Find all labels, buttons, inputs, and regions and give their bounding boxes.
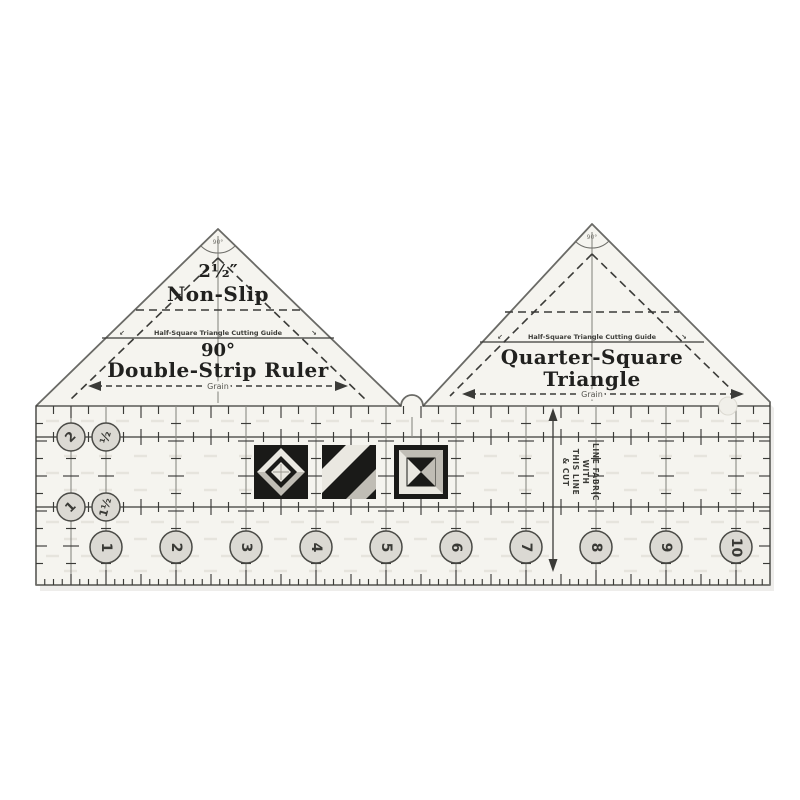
left-nonslip-label: Non-Slip [167, 282, 269, 306]
note-line-3: THIS LINE [571, 449, 580, 496]
svg-text:1: 1 [98, 543, 114, 553]
right-guide-arrow-left-icon: ↙ [497, 333, 502, 341]
strip-label: ½ [92, 423, 120, 451]
strip-label: 2 [57, 423, 85, 451]
note-line-4: & CUT [561, 458, 570, 487]
inch-label: 10 [720, 531, 752, 563]
inch-label: 1 [90, 531, 122, 563]
left-apex-angle-label: 90° [213, 239, 224, 246]
right-guide-arrow-right-icon: ↘ [681, 333, 686, 341]
left-guide-arrow-left-icon: ↙ [119, 329, 124, 337]
svg-text:7: 7 [518, 543, 534, 553]
inch-label: 7 [510, 531, 542, 563]
right-guide-label: Half-Square Triangle Cutting Guide [528, 333, 657, 341]
svg-text:3: 3 [238, 543, 254, 553]
right-title-line1: Quarter-Square [501, 345, 683, 369]
svg-text:8: 8 [588, 543, 604, 553]
right-title-line2: Triangle [543, 367, 640, 391]
left-guide-arrow-right-icon: ↘ [311, 329, 316, 337]
inch-label: 6 [440, 531, 472, 563]
note-line-2: WITH [581, 460, 590, 485]
product-photo-quilting-ruler: 90° 2½″ Non-Slip ↙ Half-Square Triangle … [0, 0, 800, 800]
svg-text:5: 5 [378, 543, 394, 553]
quilt-block-icons [254, 445, 448, 499]
right-apex-angle-label: 90° [587, 234, 598, 241]
svg-text:6: 6 [448, 543, 464, 553]
inch-label: 3 [230, 531, 262, 563]
left-guide-label: Half-Square Triangle Cutting Guide [154, 329, 283, 337]
left-grain-label: Grain [207, 382, 229, 391]
left-size-label: 2½″ [198, 261, 237, 282]
inch-label: 2 [160, 531, 192, 563]
quilt-block-hourglass-icon [394, 445, 448, 499]
strip-label: 1½ [92, 493, 120, 521]
molded-dot [719, 397, 737, 415]
right-grain-label: Grain [581, 390, 603, 399]
svg-text:10: 10 [728, 538, 744, 558]
quilt-block-diagonal-stripes-icon [322, 445, 376, 499]
strip-label: 1 [57, 493, 85, 521]
svg-text:2: 2 [168, 543, 184, 553]
inch-label: 8 [580, 531, 612, 563]
quilt-block-square-in-square-icon [254, 445, 308, 499]
left-title-label: Double-Strip Ruler [107, 358, 329, 382]
ruler-body [36, 224, 770, 585]
ruler-image: 90° 2½″ Non-Slip ↙ Half-Square Triangle … [0, 0, 800, 800]
left-triangle-markings: 90° 2½″ Non-Slip ↙ Half-Square Triangle … [70, 236, 366, 403]
svg-text:9: 9 [658, 543, 674, 553]
inch-label: 9 [650, 531, 682, 563]
inch-label: 4 [300, 531, 332, 563]
svg-text:4: 4 [308, 543, 324, 553]
inch-label: 5 [370, 531, 402, 563]
note-line-1: LINE FABRIC [591, 443, 600, 501]
